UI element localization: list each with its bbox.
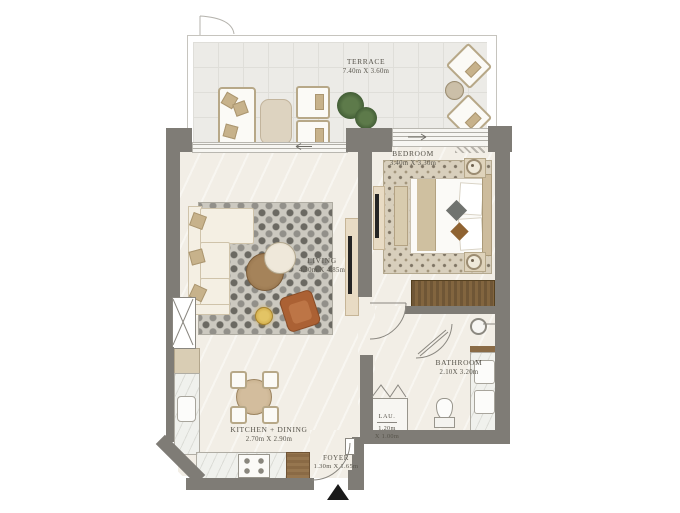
toilet-tank [434,417,455,428]
foyer-label: FOYER 1.30m X 1.65m [303,454,369,472]
floor-plan: TERRACE 7.40m X 3.60m BEDROOM 3.40m X 3.… [0,0,680,513]
bathroom-dims: 2.10X 3.20m [414,368,504,377]
foyer-dims: 1.30m X 1.65m [303,463,369,472]
foyer-name: FOYER [303,454,369,463]
armchair-cushion [288,299,313,324]
outdoor-side-table [445,81,464,100]
shaft [172,297,196,349]
wall [405,306,495,314]
wall [166,347,174,442]
sliding-door [192,142,348,153]
terrace-dims: 7.40m X 3.60m [316,67,416,76]
window-hatch [455,146,485,153]
laundry-name: LAU. [377,413,398,423]
table-lamp [466,254,482,270]
bathroom-label: BATHROOM 2.10X 3.20m [414,358,504,377]
kitchen-label: KITCHEN + DINING 2.70m X 2.90m [219,425,319,444]
dining-chair [230,406,247,424]
outdoor-sofa-pillow [232,100,249,117]
wall [495,146,510,432]
laundry-dim-h: X 1.00m [368,433,406,442]
plant-2 [355,107,377,129]
terrace-label: TERRACE 7.40m X 3.60m [316,57,416,76]
outdoor-sofa [218,87,256,150]
kitchen-sink [177,396,196,422]
dining-chair [262,371,279,389]
living-name: LIVING [277,256,367,266]
terrace-gate-arc [200,16,234,35]
dining-chair [262,406,279,424]
lounge-cushion [465,61,482,78]
stove [238,454,270,478]
sink-basin [474,390,495,414]
wardrobe [411,280,495,308]
wall [186,478,314,490]
kitchen-upper-cabinet [174,348,200,375]
outdoor-coffee-table [260,99,292,145]
bedroom-window [392,128,490,147]
lounge-cushion [465,112,482,129]
entry-arrow [327,484,349,500]
terrace-name: TERRACE [316,57,416,67]
entry-door-leaf [345,438,355,455]
table-lamp [466,159,482,175]
headboard [482,174,492,256]
side-table-gold [255,307,273,325]
shower-head [470,318,487,335]
living-label: LIVING 4.30m X 4.85m [277,256,367,275]
sofa-chaise [200,208,254,244]
kitchen-name: KITCHEN + DINING [219,425,319,435]
outdoor-armchair-1 [296,86,330,119]
living-dims: 4.30m X 4.85m [277,266,367,275]
bed-blanket [417,179,436,251]
bathroom-name: BATHROOM [414,358,504,368]
outdoor-sofa-pillow [223,124,239,140]
bedroom-name: BEDROOM [368,149,458,159]
sofa [188,206,258,313]
dining-chair [230,371,247,389]
outdoor-chair-cushion [315,94,324,110]
wall [166,152,180,297]
tv-bedroom [375,194,379,238]
laundry-dim-w: 1.20m [368,425,406,434]
bed [410,178,488,254]
laundry-label: LAU. 1.20m X 1.00m [368,403,406,442]
wall [166,128,192,152]
bedroom-bench [394,186,408,246]
kitchen-dims: 2.70m X 2.90m [219,435,319,444]
bedroom-dims: 3.40m X 3.30m [368,159,458,168]
bedroom-label: BEDROOM 3.40m X 3.30m [368,149,458,168]
